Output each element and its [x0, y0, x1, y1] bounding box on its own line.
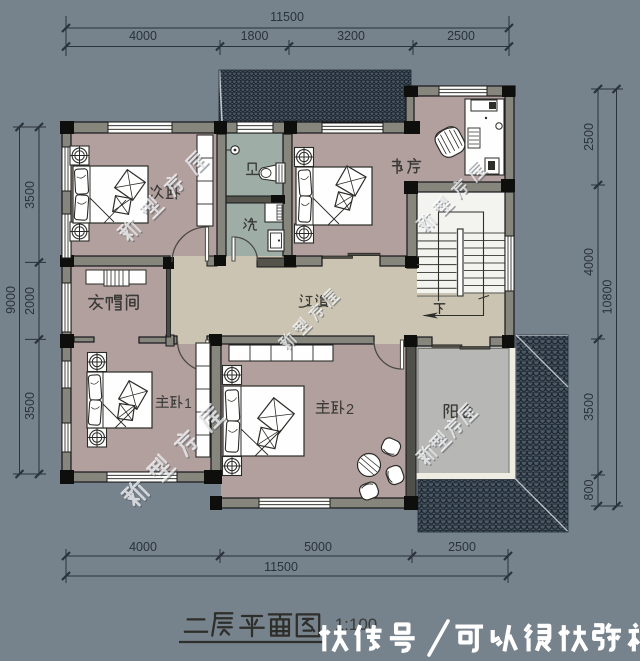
svg-text:3500: 3500 — [582, 393, 596, 421]
svg-text:2500: 2500 — [582, 123, 596, 151]
svg-text:4000: 4000 — [582, 248, 596, 276]
svg-text:10800: 10800 — [601, 280, 615, 315]
svg-text:3500: 3500 — [23, 181, 37, 209]
svg-text:11500: 11500 — [264, 560, 298, 574]
svg-text:11500: 11500 — [270, 10, 304, 24]
svg-text:3500: 3500 — [23, 392, 37, 420]
svg-text:2000: 2000 — [23, 287, 37, 315]
svg-text:2: 2 — [346, 402, 354, 418]
svg-text:1: 1 — [184, 396, 192, 411]
svg-text:3200: 3200 — [337, 29, 365, 43]
svg-text:2500: 2500 — [447, 29, 475, 43]
svg-text:5000: 5000 — [304, 540, 332, 554]
svg-text:800: 800 — [582, 480, 596, 501]
svg-text:4000: 4000 — [129, 29, 157, 43]
svg-text:2500: 2500 — [448, 540, 476, 554]
svg-text:9000: 9000 — [4, 286, 18, 314]
svg-text:1800: 1800 — [241, 29, 269, 43]
svg-text:4000: 4000 — [129, 540, 157, 554]
